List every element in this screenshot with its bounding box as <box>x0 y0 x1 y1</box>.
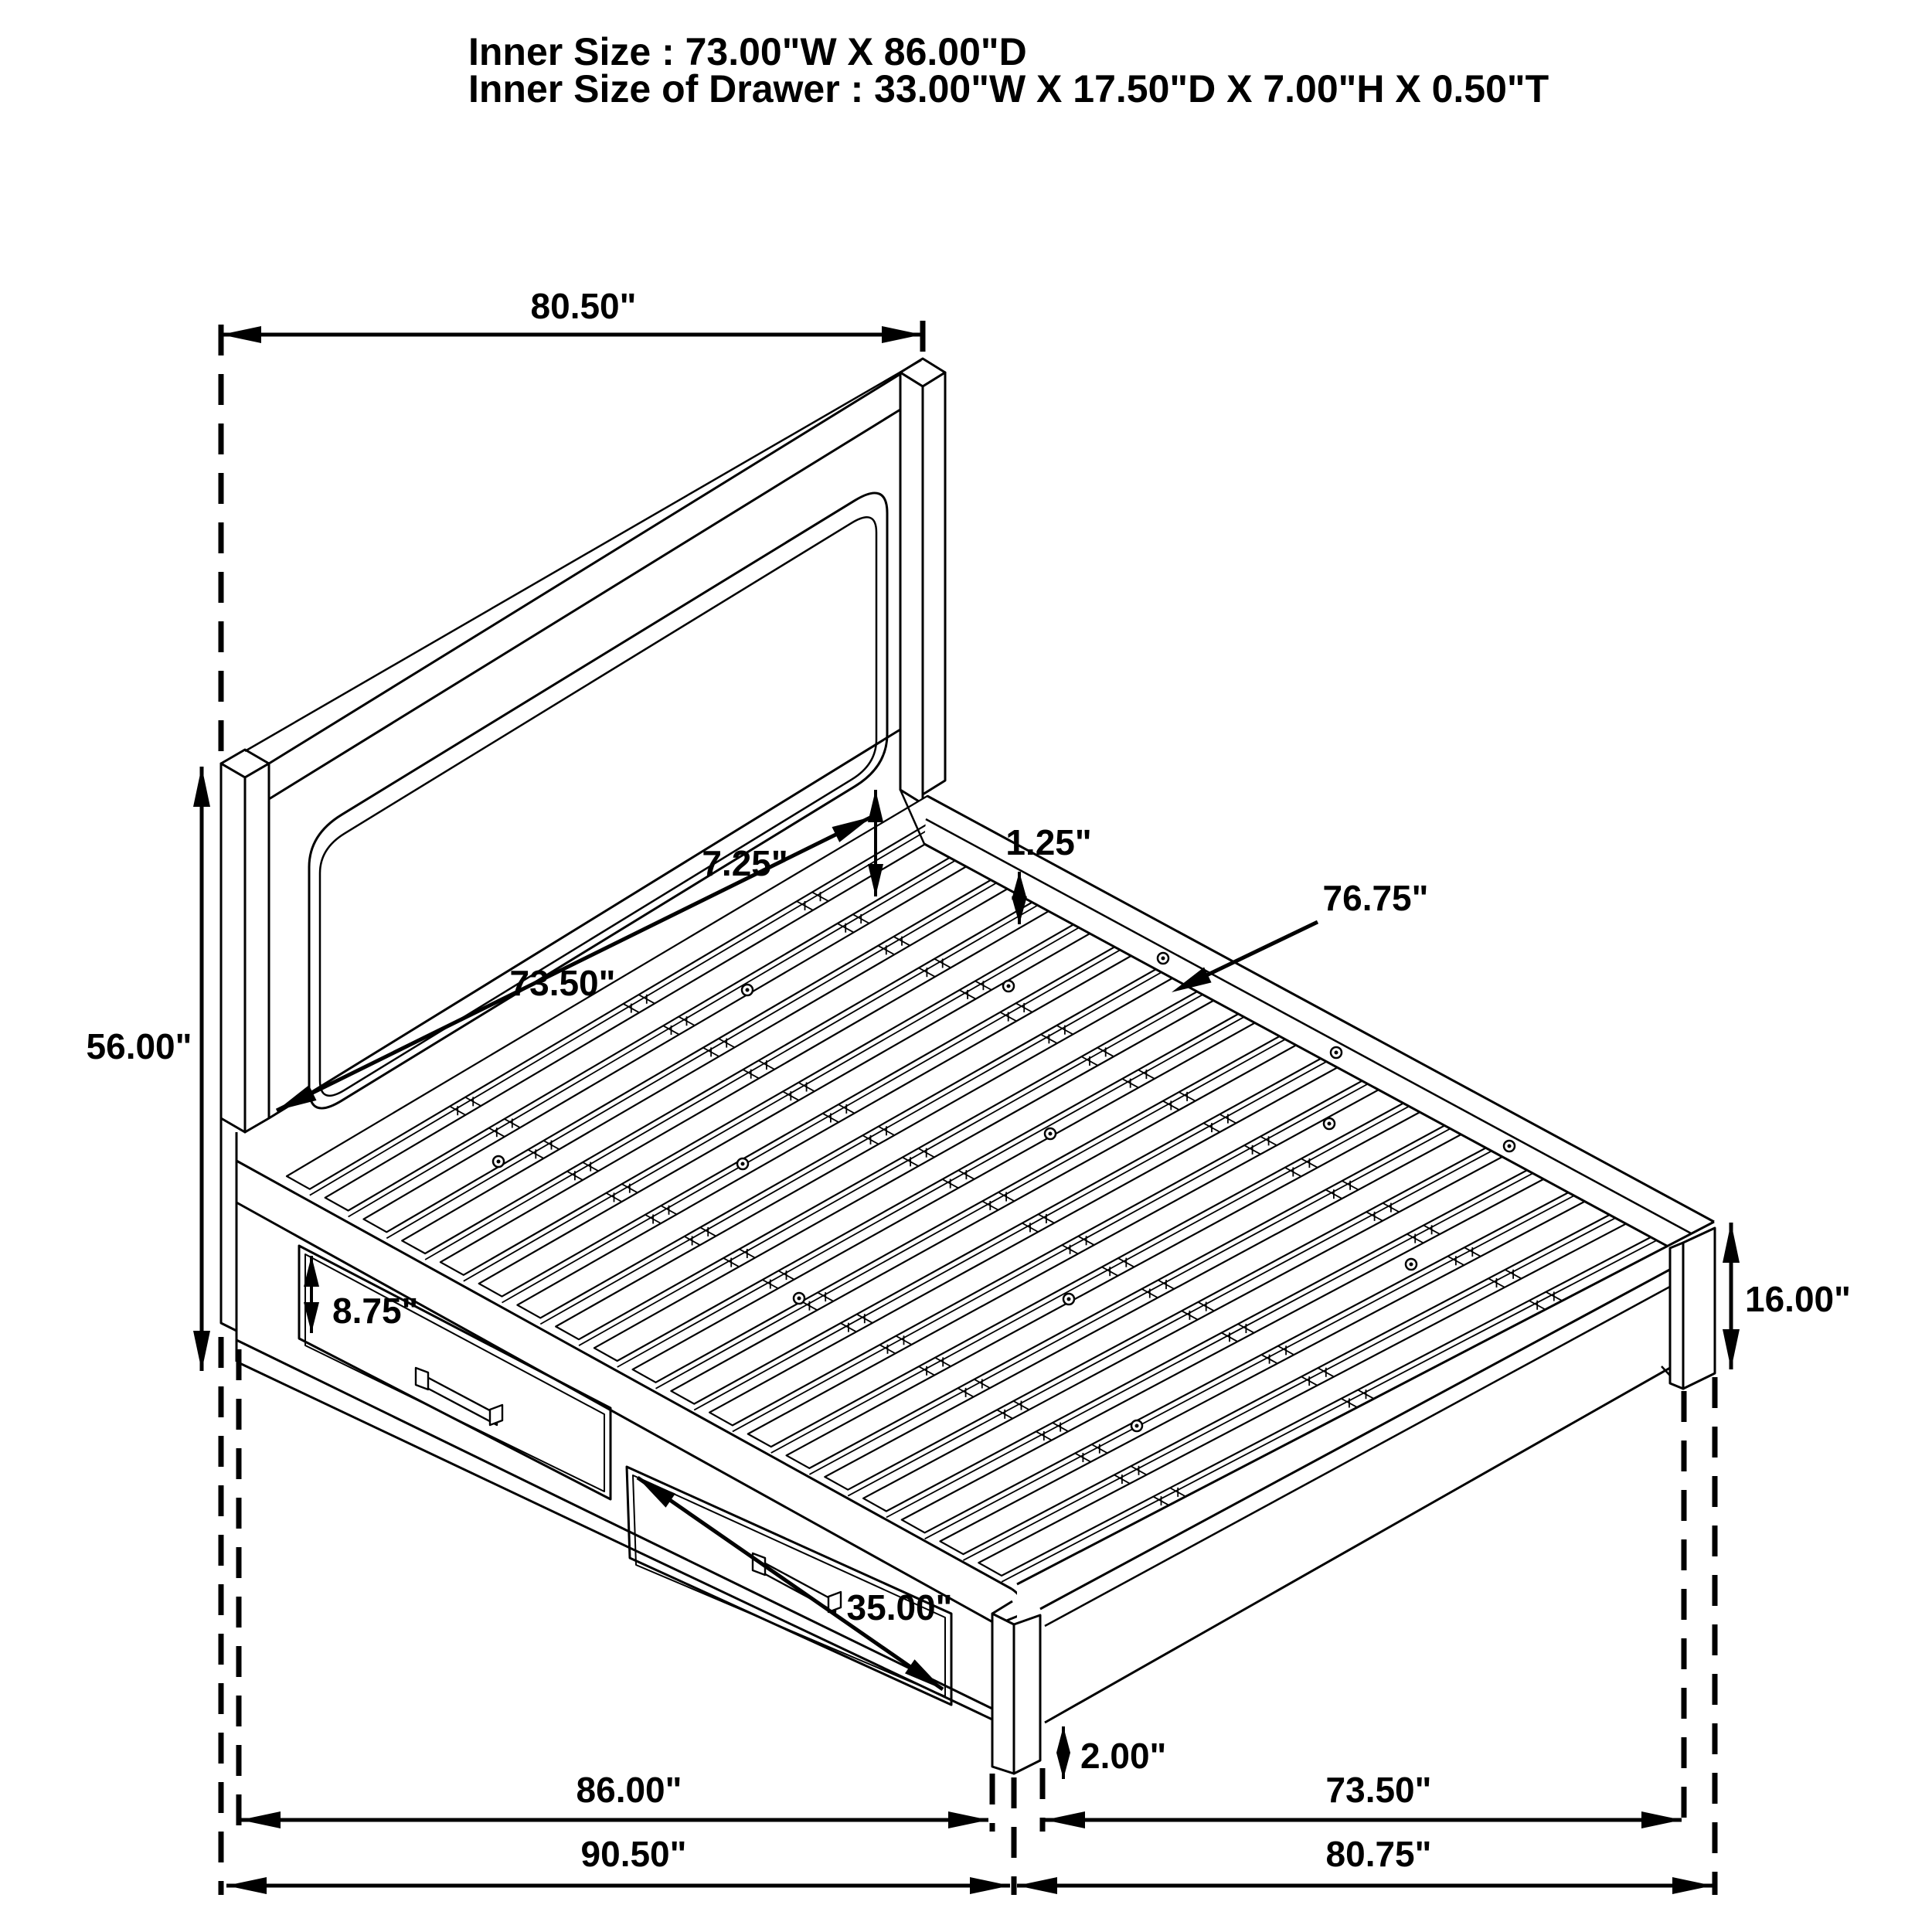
svg-text:1.25": 1.25" <box>1005 822 1091 862</box>
svg-text:73.50": 73.50" <box>510 963 616 1003</box>
svg-text:7.25": 7.25" <box>702 843 787 883</box>
svg-text:35.00": 35.00" <box>847 1587 953 1628</box>
svg-text:86.00": 86.00" <box>577 1770 682 1810</box>
svg-text:80.50": 80.50" <box>531 286 637 326</box>
svg-text:90.50": 90.50" <box>581 1834 687 1874</box>
svg-text:2.00": 2.00" <box>1080 1736 1166 1776</box>
svg-text:56.00": 56.00" <box>87 1026 192 1066</box>
svg-text:76.75": 76.75" <box>1323 878 1429 918</box>
svg-text:16.00": 16.00" <box>1745 1279 1851 1319</box>
svg-text:8.75": 8.75" <box>332 1291 418 1331</box>
svg-text:Inner Size of Drawer : 33.00"W: Inner Size of Drawer : 33.00"W X 17.50"D… <box>468 67 1549 111</box>
svg-text:80.75": 80.75" <box>1326 1834 1432 1874</box>
svg-text:73.50": 73.50" <box>1326 1770 1432 1810</box>
